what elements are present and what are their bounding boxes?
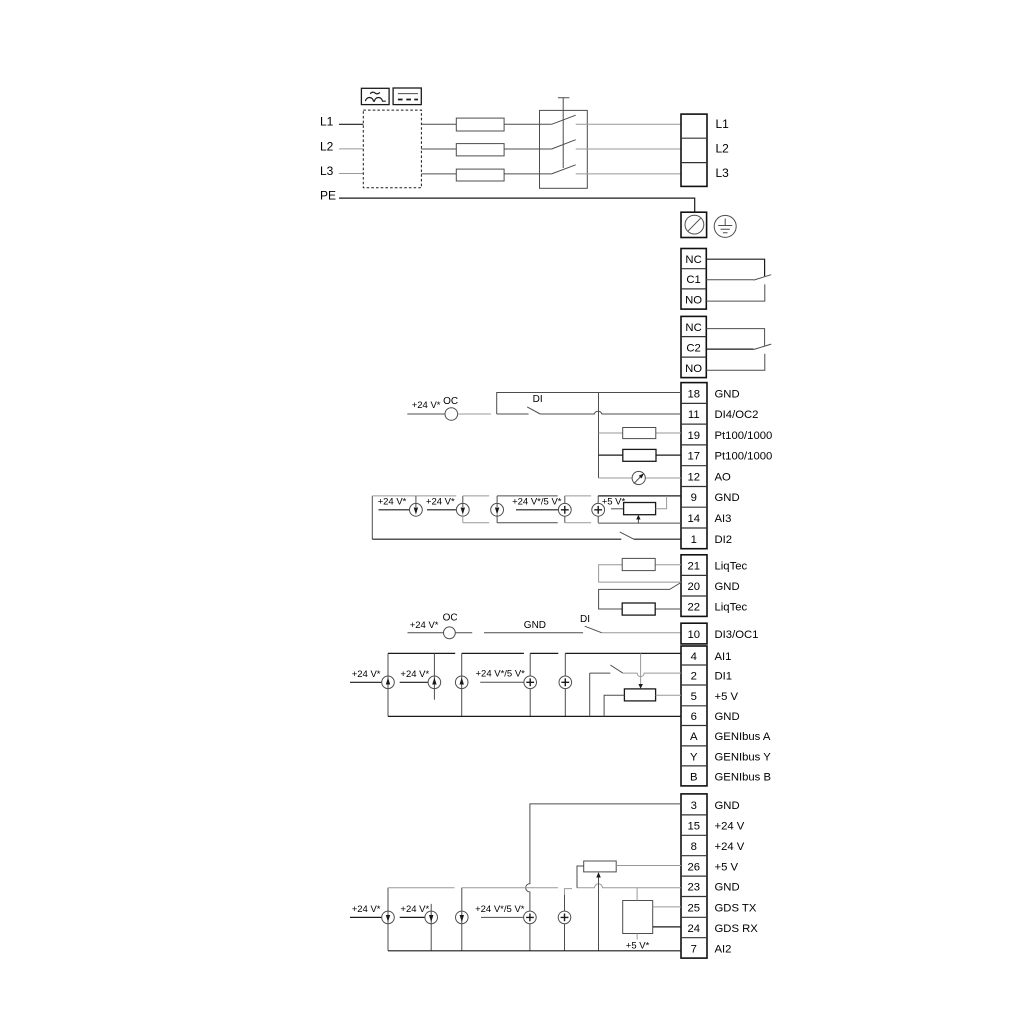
- svg-text:20: 20: [688, 581, 701, 593]
- svg-text:GENIbus B: GENIbus B: [715, 771, 772, 783]
- svg-text:L2: L2: [320, 139, 334, 153]
- svg-text:L3: L3: [716, 166, 730, 180]
- svg-text:+24 V*/5 V*: +24 V*/5 V*: [475, 904, 525, 915]
- svg-text:GENIbus A: GENIbus A: [715, 731, 771, 743]
- svg-text:LiqTec: LiqTec: [715, 602, 748, 614]
- svg-text:OC: OC: [443, 612, 458, 623]
- svg-text:14: 14: [688, 513, 701, 525]
- svg-text:9: 9: [691, 492, 697, 504]
- svg-text:B: B: [690, 771, 698, 783]
- svg-text:GND: GND: [715, 711, 740, 723]
- svg-text:+24 V: +24 V: [715, 821, 745, 833]
- svg-text:GND: GND: [524, 620, 546, 631]
- svg-text:A: A: [690, 731, 698, 743]
- svg-text:DI3/OC1: DI3/OC1: [715, 629, 759, 641]
- svg-text:+24 V*: +24 V*: [352, 904, 381, 915]
- svg-text:OC: OC: [443, 396, 458, 407]
- svg-text:GND: GND: [715, 492, 740, 504]
- svg-text:+5 V: +5 V: [715, 691, 739, 703]
- svg-text:Pt100/1000: Pt100/1000: [715, 451, 773, 463]
- svg-text:Y: Y: [690, 751, 698, 763]
- svg-text:8: 8: [691, 841, 697, 853]
- svg-text:DI: DI: [533, 394, 543, 405]
- svg-text:AI1: AI1: [715, 651, 732, 663]
- svg-text:+24 V: +24 V: [715, 841, 745, 853]
- svg-text:+24 V*: +24 V*: [378, 496, 407, 507]
- svg-text:GND: GND: [715, 882, 740, 894]
- svg-text:26: 26: [688, 861, 701, 873]
- svg-text:Pt100/1000: Pt100/1000: [715, 430, 773, 442]
- svg-text:+5 V*: +5 V*: [602, 496, 626, 507]
- svg-text:DI4/OC2: DI4/OC2: [715, 409, 759, 421]
- svg-text:+24 V*: +24 V*: [426, 496, 455, 507]
- svg-text:+24 V*/5 V*: +24 V*/5 V*: [476, 668, 526, 679]
- svg-text:L3: L3: [320, 164, 334, 178]
- svg-text:+5 V: +5 V: [715, 861, 739, 873]
- svg-text:AI3: AI3: [715, 513, 732, 525]
- svg-text:23: 23: [688, 882, 701, 894]
- svg-text:LiqTec: LiqTec: [715, 561, 748, 573]
- svg-text:19: 19: [688, 430, 701, 442]
- svg-text:3: 3: [691, 800, 697, 812]
- svg-text:2: 2: [691, 671, 697, 683]
- svg-text:12: 12: [688, 471, 701, 483]
- svg-text:5: 5: [691, 691, 697, 703]
- svg-text:DI2: DI2: [715, 534, 733, 546]
- svg-text:NC: NC: [685, 322, 701, 334]
- svg-text:C2: C2: [686, 343, 700, 355]
- svg-text:L1: L1: [320, 115, 334, 129]
- svg-text:6: 6: [691, 711, 697, 723]
- svg-text:21: 21: [688, 561, 701, 573]
- svg-text:7: 7: [691, 943, 697, 955]
- svg-text:GND: GND: [715, 388, 740, 400]
- svg-text:L1: L1: [716, 117, 730, 131]
- svg-text:11: 11: [688, 409, 700, 421]
- svg-text:DI1: DI1: [715, 671, 733, 683]
- svg-text:PE: PE: [320, 189, 336, 203]
- svg-text:24: 24: [688, 923, 701, 935]
- svg-text:+24 V*: +24 V*: [352, 669, 381, 680]
- svg-text:L2: L2: [716, 142, 730, 156]
- svg-text:GENIbus Y: GENIbus Y: [715, 751, 772, 763]
- svg-text:DI: DI: [580, 614, 590, 625]
- svg-text:NC: NC: [685, 254, 701, 266]
- svg-text:+5 V*: +5 V*: [626, 940, 650, 951]
- svg-text:18: 18: [688, 388, 701, 400]
- svg-text:22: 22: [688, 602, 701, 614]
- svg-text:GND: GND: [715, 800, 740, 812]
- svg-text:+24 V*: +24 V*: [400, 669, 429, 680]
- svg-text:15: 15: [688, 821, 701, 833]
- svg-text:AO: AO: [715, 471, 732, 483]
- svg-text:25: 25: [688, 902, 701, 914]
- svg-text:NO: NO: [685, 363, 702, 375]
- svg-text:+24 V*: +24 V*: [400, 904, 429, 915]
- svg-text:+24 V*: +24 V*: [412, 400, 441, 411]
- svg-text:17: 17: [688, 451, 701, 463]
- svg-text:1: 1: [691, 534, 697, 546]
- svg-text:GDS TX: GDS TX: [715, 902, 757, 914]
- svg-text:+24 V*: +24 V*: [410, 620, 439, 631]
- svg-text:10: 10: [688, 629, 701, 641]
- svg-text:GND: GND: [715, 581, 740, 593]
- svg-text:+24 V*/5 V*: +24 V*/5 V*: [512, 496, 562, 507]
- svg-text:4: 4: [691, 651, 697, 663]
- svg-text:GDS RX: GDS RX: [715, 923, 759, 935]
- svg-text:C1: C1: [686, 274, 700, 286]
- svg-text:NO: NO: [685, 294, 702, 306]
- svg-text:AI2: AI2: [715, 943, 732, 955]
